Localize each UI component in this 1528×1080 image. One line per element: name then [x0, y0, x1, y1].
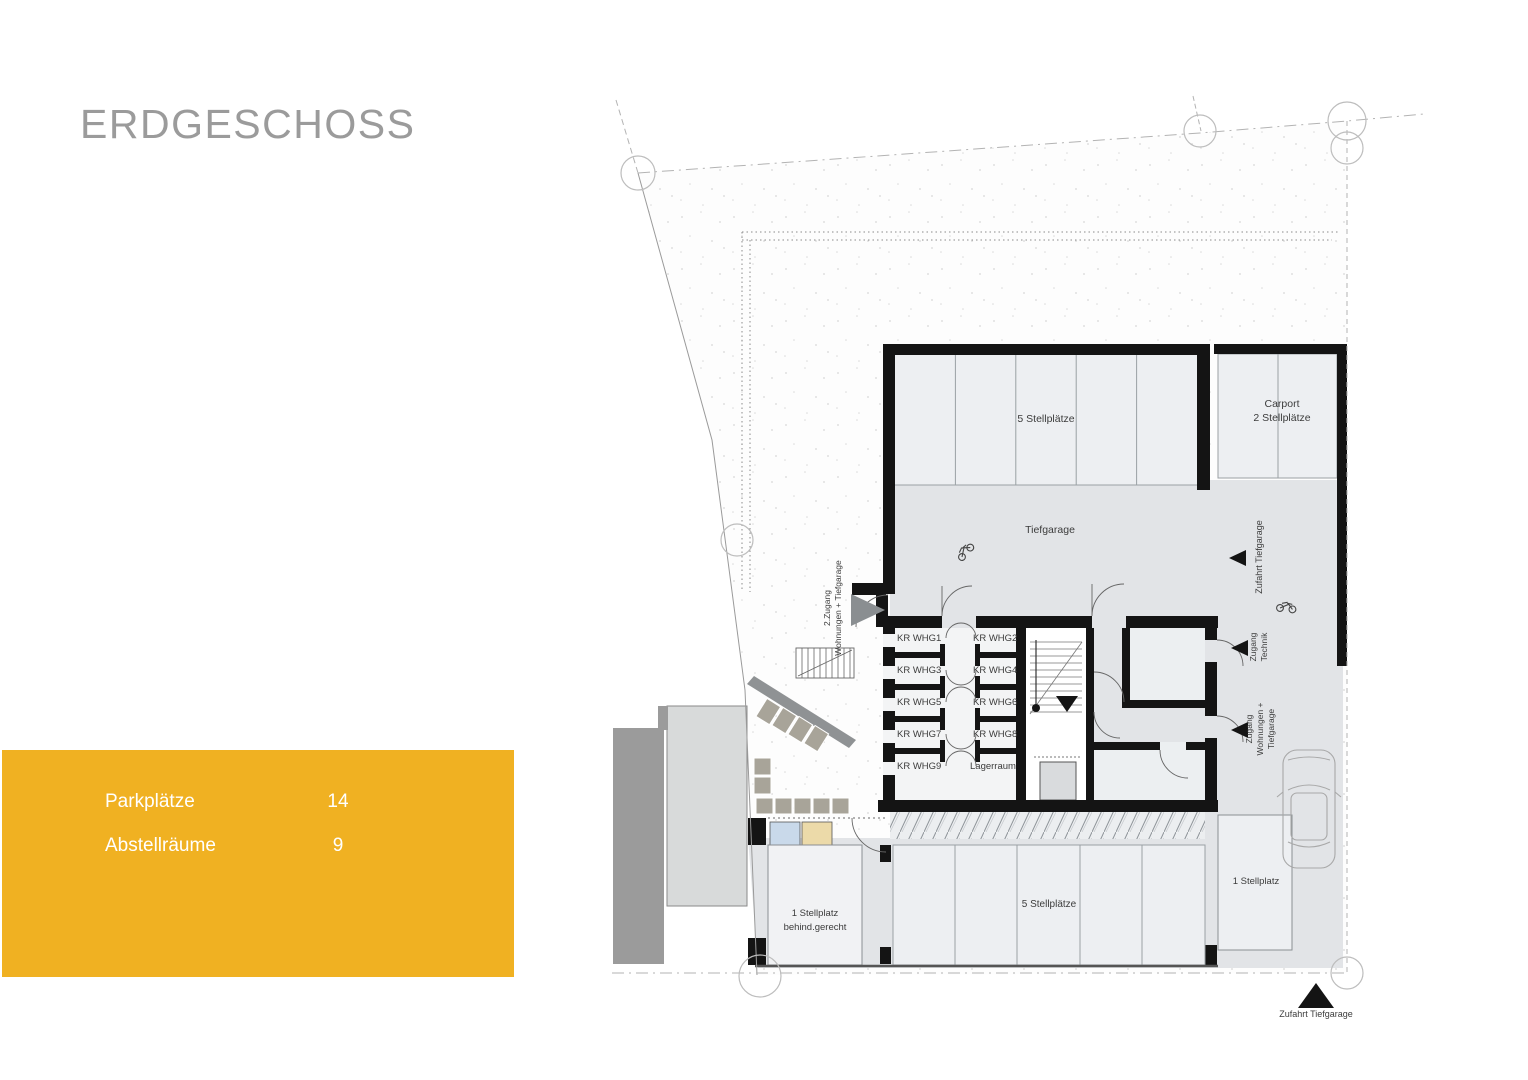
bench-beige: [802, 822, 832, 845]
label-kr-whg4: KR WHG4: [973, 665, 1017, 676]
elevator: [1034, 757, 1080, 800]
abstellraeume-label: Abstellräume: [105, 836, 315, 856]
floorplan-page: ERDGESCHOSS: [0, 0, 1528, 1080]
label-carport-1: Carport: [1264, 398, 1299, 410]
label-kr-whg9: KR WHG9: [897, 761, 941, 772]
label-wohnungen-3: Tiefgarage: [1266, 709, 1276, 750]
label-disabled-parking-1: 1 Stellplatz: [792, 908, 839, 919]
label-disabled-parking-2: behind.gerecht: [784, 922, 847, 933]
parkplaetze-value: 14: [315, 792, 361, 812]
label-kr-whg7: KR WHG7: [897, 729, 941, 740]
abstellraeume-value: 9: [315, 836, 361, 856]
label-tiefgarage: Tiefgarage: [1025, 524, 1075, 536]
label-lagerraum: Lagerraum: [970, 761, 1016, 772]
label-technik-2: Technik: [1259, 632, 1269, 662]
label-top-parking: 5 Stellplätze: [1017, 413, 1074, 425]
label-zufahrt-bottom: Zufahrt Tiefgarage: [1279, 1009, 1353, 1019]
stair-start-dot: [1032, 704, 1040, 712]
label-kr-whg2: KR WHG2: [973, 633, 1017, 644]
info-row-abstellraeume: Abstellräume 9: [105, 836, 514, 856]
parkplaetze-label: Parkplätze: [105, 792, 315, 812]
bench-blue: [770, 822, 800, 845]
label-wohnungen-1: Zugang: [1244, 714, 1254, 743]
label-kr-whg5: KR WHG5: [897, 697, 941, 708]
label-kr-whg6: KR WHG6: [973, 697, 1017, 708]
label-second-zugang-2: Wohnungen + Tiefgarage: [833, 560, 843, 656]
label-zufahrt-side: Zufahrt Tiefgarage: [1254, 520, 1264, 594]
label-kr-whg3: KR WHG3: [897, 665, 941, 676]
info-row-parkplaetze: Parkplätze 14: [105, 792, 514, 812]
ramp-hatch: [890, 812, 1205, 839]
label-technik-1: Zugang: [1248, 632, 1258, 661]
label-wohnungen-2: Wohnungen +: [1255, 702, 1265, 755]
label-kr-whg8: KR WHG8: [973, 729, 1017, 740]
label-single-parking: 1 Stellplatz: [1233, 876, 1280, 887]
label-kr-whg1: KR WHG1: [897, 633, 941, 644]
label-bottom-parking: 5 Stellplätze: [1022, 899, 1077, 910]
label-carport-2: 2 Stellplätze: [1253, 412, 1310, 424]
label-second-zugang-1: 2.Zugang: [822, 590, 832, 626]
neighbour-buildings: [613, 706, 747, 964]
parking-info-panel: Parkplätze 14 Abstellräume 9: [2, 750, 514, 977]
